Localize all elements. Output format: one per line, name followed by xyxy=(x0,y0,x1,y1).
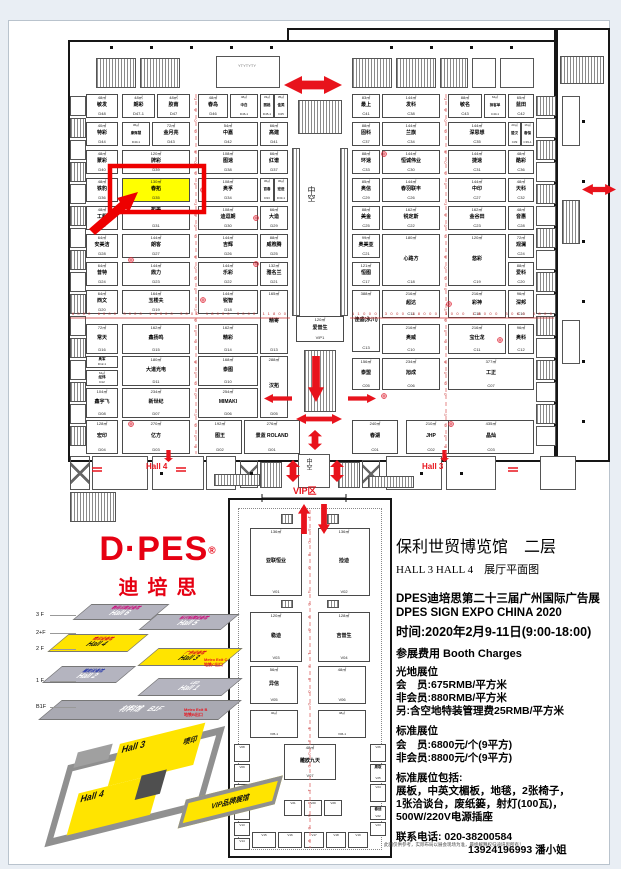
wall-booth xyxy=(536,206,556,226)
std-nonmember-price: 非会员:8800元/个(9平方) xyxy=(396,752,616,765)
booth-V01: 136㎡亚联恒业V01 xyxy=(250,528,302,596)
floor-tag: 3 F xyxy=(36,612,44,618)
std-includes-1: 展板，中英文楣板，地毯，2张椅子， xyxy=(396,785,616,798)
mini-map-vip-label: VIP品牌展馆 xyxy=(210,793,250,810)
facility-room xyxy=(500,58,534,88)
escalator-icon xyxy=(338,462,360,488)
facility-room xyxy=(562,320,580,364)
booth-D46: 48㎡春岛D46 xyxy=(198,94,228,118)
booth-C26: 144㎡春羽联丰C26 xyxy=(382,178,440,202)
wall-booth xyxy=(70,360,86,380)
booth-D45-1: 33㎡丽格D45-1 xyxy=(260,94,274,118)
wall-booth xyxy=(70,206,86,226)
booth-C34: 144㎡兰旗C34 xyxy=(382,122,440,146)
escalator-icon xyxy=(396,58,436,88)
logo-text: D·PES xyxy=(99,530,208,568)
facility-room xyxy=(562,96,580,146)
wall-booth xyxy=(70,294,86,314)
booth-C17: 121㎡恒图C17 xyxy=(352,262,380,286)
booth-C03: 435㎡晶灿C03 xyxy=(448,420,534,454)
booth-C32: 48㎡天科C32 xyxy=(508,178,534,202)
wall-booth xyxy=(70,426,86,446)
escalator-icon xyxy=(352,58,392,88)
booth-C19: 120㎡悠彩C19 xyxy=(448,234,506,286)
wall-booth xyxy=(536,338,556,358)
booth-C22: 162㎡锐定斯C22 xyxy=(382,206,440,230)
escalator-icon xyxy=(96,58,136,88)
booth-V04: 128㎡吉普生V04 xyxy=(318,612,370,662)
booth-C28: 48㎡音惠C28 xyxy=(508,206,534,230)
booth-VIP1: 120㎡爱普生VIP1 xyxy=(296,316,344,342)
raw-member-price: 会 员:675RMB/平方米 xyxy=(396,679,616,692)
booth-D19: 164㎡玉楼夫D19 xyxy=(122,290,190,314)
booth-V06: 48㎡V06 xyxy=(318,666,366,704)
wall-booth xyxy=(70,404,86,424)
wall-booth xyxy=(536,250,556,270)
booth-D48: 48㎡敏发D48 xyxy=(86,94,118,118)
escalator-icon xyxy=(440,58,468,88)
booth-C15: 216㎡彩神C15 xyxy=(448,290,506,318)
booth-V25: 周取V25 xyxy=(370,764,386,782)
booth-C07: 377㎡工正C07 xyxy=(448,358,534,390)
vip-area-label: VIP区 xyxy=(293,487,317,496)
booth-D27: 144㎡朗客D27 xyxy=(122,234,190,258)
floor-leader-line xyxy=(50,649,76,650)
booth-V26: V26 xyxy=(370,744,386,762)
booth-V18: V18 xyxy=(326,832,346,848)
booth-V21: V21 xyxy=(284,800,302,816)
booth-D02: 192㎡图王D02 xyxy=(198,420,242,454)
escalator-icon xyxy=(260,462,282,488)
booth-C27: 144㎡中印C27 xyxy=(448,178,506,202)
wall-booth xyxy=(536,404,556,424)
booth-D39: 120㎡牌彩D39 xyxy=(122,150,190,174)
column-dot xyxy=(582,180,585,183)
wall-booth xyxy=(70,118,86,138)
floorplan-page: 48㎡敏发D4840㎡特彩D4448㎡蒙彩D4048㎡铁豹D3648㎡工程D32… xyxy=(0,0,621,869)
booth-C12: 96㎡奥科C12 xyxy=(508,324,534,354)
booth-D34: 108㎡奥孚D34 xyxy=(198,178,258,202)
booth-C29: 85㎡奥信C29 xyxy=(352,178,380,202)
escalator-icon xyxy=(327,514,339,524)
wall-booth xyxy=(536,228,556,248)
stairs-icon xyxy=(70,456,90,490)
column-dot xyxy=(190,46,193,49)
floor-tag: 2+F xyxy=(36,630,46,636)
escalator-icon xyxy=(562,200,580,244)
floor-leader-line xyxy=(50,681,76,682)
column-dot xyxy=(510,46,513,49)
column-dot xyxy=(582,420,585,423)
escalator-icon xyxy=(292,148,300,316)
booth-D18: 144㎡锐智D18 xyxy=(198,290,258,314)
booth-D07: 234㎡新世纪D07 xyxy=(122,388,190,418)
escalator-icon xyxy=(281,514,293,524)
registered-mark-icon: ® xyxy=(208,546,215,557)
booth-V24: V24 xyxy=(370,784,386,802)
booth-D28: 64㎡安美洁D28 xyxy=(86,234,118,258)
column-dot xyxy=(430,46,433,49)
expo-title-en: DPES SIGN EXPO CHINA 2020 xyxy=(396,606,616,620)
booth-D14: 162㎡精彩D14 xyxy=(198,324,258,354)
facility-room xyxy=(446,456,496,490)
column-dot xyxy=(582,120,585,123)
hall4-label: Hall 4 xyxy=(146,463,167,471)
booth-C36: 48㎡酷彩C36 xyxy=(508,150,534,174)
booth-C23: 162㎡金谷田C23 xyxy=(448,206,506,230)
booth-C38: 144㎡发科C38 xyxy=(382,94,440,118)
booth-D08: 104㎡鑫宇飞D08 xyxy=(86,388,118,418)
wall-booth xyxy=(536,272,556,292)
booth-D42: 54㎡中嘉D42 xyxy=(198,122,258,146)
column-dot xyxy=(470,46,473,49)
std-includes-2: 1张洽谈台，废纸篓，射灯(100瓦)， xyxy=(396,798,616,811)
booth-D37: 66㎡红谱D37 xyxy=(260,150,288,174)
booth-D24: 64㎡普特D24 xyxy=(86,262,118,286)
booth-D29: 66㎡大造D29 xyxy=(260,206,288,230)
booth-C33: 88㎡环速C33 xyxy=(352,150,380,174)
booth-V05-1: 40㎡V05-1 xyxy=(250,710,298,738)
booth-charges-title: 参展费用 Booth Charges xyxy=(396,648,616,662)
expo-time: 时间:2020年2月9-11日(9:00-18:00) xyxy=(396,625,616,641)
venue-mini-map: Hall 3 喷印 Hall 4 喷印 VIP品牌展馆 xyxy=(28,738,248,863)
booth-D32: 48㎡工程D32 xyxy=(86,206,118,230)
wall-booth xyxy=(536,294,556,314)
wall-booth xyxy=(70,162,86,182)
booth-D47-1: 48㎡朗彩D47-1 xyxy=(122,94,155,118)
facility-room xyxy=(216,56,280,88)
booth-D01: 276㎡景蓝 ROLANDD01 xyxy=(244,420,300,454)
booth-C30: 144㎡恒诚伟业C30 xyxy=(382,150,440,174)
booth-V19: V19 xyxy=(348,832,368,848)
booth-D30: 108㎡迪逗朗D30 xyxy=(198,206,258,230)
floor-tag: 2 F xyxy=(36,646,44,652)
wall-booth xyxy=(70,382,86,402)
booth-D25: 88㎡威煦腾D25 xyxy=(260,234,288,258)
raw-mgmt-fee: 另:含空地特装管理费25RMB/平方米 xyxy=(396,705,616,718)
facility-room xyxy=(92,456,148,490)
column-dot xyxy=(582,300,585,303)
booth-D12: 64㎡经纬D12 xyxy=(86,370,118,386)
wall-booth xyxy=(70,250,86,270)
booth-C20: 88㎡爱科C20 xyxy=(508,262,534,286)
logo-cn-text: 迪培思 xyxy=(70,571,245,600)
column-dot xyxy=(250,472,253,475)
wall-booth xyxy=(536,316,556,336)
stack-slab-Hall-1: LEDHall 1 xyxy=(137,678,242,696)
booth-D46-1: 48㎡中白D46-1 xyxy=(230,94,258,118)
escalator-icon xyxy=(368,476,414,488)
escalator-icon xyxy=(560,56,604,84)
column-dot xyxy=(160,472,163,475)
std-member-price: 会 员:6800元/个(9平方) xyxy=(396,739,616,752)
wall-booth xyxy=(536,360,556,380)
booth-C42: 65㎡蓝田C42 xyxy=(508,94,534,118)
booth-C37: 88㎡固科C37 xyxy=(352,122,380,146)
escalator-icon xyxy=(281,600,293,608)
booth-V20: V20 xyxy=(304,800,322,816)
booth-D13: 165㎡精寄D13 xyxy=(260,290,288,354)
column-dot xyxy=(230,46,233,49)
booth-C39-1: 16㎡春恒C39-1 xyxy=(521,122,534,146)
vent-marks: YTYTYTY xyxy=(238,64,256,68)
floor-leader-line xyxy=(50,633,76,634)
booth-D44: 40㎡特彩D44 xyxy=(86,122,118,146)
booth-D16: 72㎡常天D16 xyxy=(86,324,118,354)
wall-booth xyxy=(536,184,556,204)
facility-room xyxy=(540,456,576,490)
wall-booth xyxy=(536,382,556,402)
booth-C05: 156㎡泰盟C05 xyxy=(352,358,380,390)
booth-D03: 270㎡亿方D03 xyxy=(122,420,190,454)
dpes-logo: D·PES® 迪培思 xyxy=(70,530,245,600)
column-dot xyxy=(110,46,113,49)
floor-leader-line xyxy=(50,615,76,616)
column-dot xyxy=(150,46,153,49)
booth-C35: 144㎡深思想C35 xyxy=(448,122,506,146)
stack-slab-Hall-5: 标识标牌设备馆Hall 5 xyxy=(138,614,239,630)
booth-D47: 48㎡胶南D47 xyxy=(157,94,190,118)
booth-D20: 64㎡西文D20 xyxy=(86,290,118,314)
facility-room xyxy=(298,454,330,488)
booth-D22: 144㎡乐彩D22 xyxy=(198,262,258,286)
wall-booth xyxy=(70,272,86,292)
booth-C13: 388㎡佳盛(永川)C13 xyxy=(352,290,380,352)
booth-V05: 56㎡异信V05 xyxy=(250,666,298,704)
booth-C14: 216㎡超达C14 xyxy=(382,290,440,318)
booth-C06: 234㎡旭成C06 xyxy=(382,358,440,390)
std-includes-title: 标准展位包括: xyxy=(396,772,616,785)
booth-D31: 拓美D31 xyxy=(122,206,190,230)
booth-D36: 48㎡铁豹D36 xyxy=(86,178,118,202)
metro-exit-label: Metro Exit C地铁C出口 xyxy=(204,658,227,668)
booth-D33-1: 30㎡宏进D33-1 xyxy=(274,178,288,202)
booth-V03: 120㎡稳迪V03 xyxy=(250,612,302,662)
booth-D10: 168㎡泰图D10 xyxy=(198,356,258,386)
booth-D05: 288㎡汉拓D05 xyxy=(260,356,288,418)
expo-info-panel: 保利世贸博览馆 二层 HALL 3 HALL 4 展厅平面图 DPES迪培思第二… xyxy=(396,538,616,858)
column-dot xyxy=(420,472,423,475)
booth-C11: 216㎡宝仕龙C11 xyxy=(448,324,506,354)
booth-C01: 240㎡春湖C01 xyxy=(352,420,398,454)
booth-C43: 88㎡敏名C43 xyxy=(448,94,482,118)
disclaimer-note: 此图仅供参考，实际布局以展会现场为准，最终解释权归迪培思所有！ xyxy=(384,842,616,848)
column-dot xyxy=(582,240,585,243)
booth-C25: 88㎡美金C25 xyxy=(352,206,380,230)
booth-C24: 72㎡观澜C24 xyxy=(508,234,534,258)
booth-D12-1: 奥军D12-1 xyxy=(86,356,118,368)
booth-C40-1: 64㎡择客单C40-1 xyxy=(484,94,506,118)
booth-D33: 36㎡百春D33 xyxy=(260,178,274,202)
hall-wall xyxy=(287,28,556,42)
escalator-icon xyxy=(298,100,342,134)
booth-V02: 136㎡捡迪V02 xyxy=(318,528,370,596)
plan-subtitle: HALL 3 HALL 4 展厅平面图 xyxy=(396,564,616,578)
escalator-icon xyxy=(70,492,116,522)
booth-D11: 180㎡大道光电D11 xyxy=(122,356,190,386)
wall-booth xyxy=(70,316,86,336)
booth-D41: 66㎡高建D41 xyxy=(260,122,288,146)
booth-C41: 83㎡最上C41 xyxy=(352,94,380,118)
floor-tag: 1 F xyxy=(36,678,44,684)
booth-V15: V15 xyxy=(252,832,276,848)
booth-C21: 99㎡奥美亚C21 xyxy=(352,234,380,258)
wall-booth xyxy=(70,228,86,248)
wall-booth xyxy=(536,162,556,182)
booth-V17: V17 xyxy=(304,832,324,848)
booth-C18: 180㎡心路方C18 xyxy=(382,234,440,286)
booth-D35: 130㎡春拓D35 xyxy=(122,178,190,202)
wall-booth xyxy=(536,118,556,138)
facility-room xyxy=(472,58,496,88)
wall-booth xyxy=(536,96,556,116)
floor-tag: B1F xyxy=(36,704,46,710)
booth-C16: 96㎡深邦C16 xyxy=(508,290,534,318)
column-dot xyxy=(582,360,585,363)
wall-booth xyxy=(70,96,86,116)
booth-D23: 144㎡鼎力D23 xyxy=(122,262,190,286)
escalator-icon xyxy=(214,474,260,486)
std-includes-3: 500W/220V电源插座 xyxy=(396,811,616,824)
booth-V06-1: 48㎡V06-1 xyxy=(318,710,366,738)
booth-C10: 216㎡奥威C10 xyxy=(382,324,440,354)
escalator-icon xyxy=(304,350,336,412)
booth-C31: 144㎡捷速C31 xyxy=(448,150,506,174)
booth-V29: V29 xyxy=(324,800,342,816)
booth-V23: V23 xyxy=(370,822,386,836)
hall-wall xyxy=(556,28,610,462)
column-dot xyxy=(390,46,393,49)
hall3-label: Hall 3 xyxy=(422,463,443,471)
booth-V16: V16 xyxy=(278,832,302,848)
std-booth-title: 标准展位 xyxy=(396,725,616,738)
wall-booth xyxy=(70,184,86,204)
booth-V07: 48㎡雕欧九天V07 xyxy=(284,744,336,780)
booth-D43: 72㎡金月亮D43 xyxy=(152,122,190,146)
raw-nonmember-price: 非会员:880RMB/平方米 xyxy=(396,692,616,705)
booth-D26: 144㎡吉辉D26 xyxy=(198,234,258,258)
booth-D45: 35㎡佳美D45 xyxy=(274,94,288,118)
booth-D06: 254㎡MIMAKID06 xyxy=(198,388,258,418)
booth-D38: 108㎡图速D38 xyxy=(198,150,258,174)
wall-booth xyxy=(536,426,556,446)
atrium-label-2: 中空 xyxy=(305,458,311,470)
expo-title-cn: DPES迪培思第二十三届广州国际广告展 xyxy=(396,592,616,606)
booth-D04: 128㎡宏印D04 xyxy=(86,420,118,454)
booth-D40: 48㎡蒙彩D40 xyxy=(86,150,118,174)
booth-C39: 20㎡楚汉C39 xyxy=(508,122,521,146)
column-dot xyxy=(460,472,463,475)
floor-leader-line xyxy=(50,707,76,708)
escalator-icon xyxy=(327,600,339,608)
wall-booth xyxy=(70,140,86,160)
raw-space-title: 光地展位 xyxy=(396,666,616,679)
wall-booth xyxy=(70,338,86,358)
venue-title: 保利世贸博览馆 二层 xyxy=(396,538,616,558)
booth-D15: 162㎡鑫扬鸣D15 xyxy=(122,324,190,354)
booth-D40-1: 36㎡康辉慧D40-1 xyxy=(122,122,150,146)
escalator-icon xyxy=(140,58,180,88)
column-dot xyxy=(270,46,273,49)
escalator-icon xyxy=(340,148,348,316)
booth-D21: 132㎡雅名兰D21 xyxy=(260,262,288,286)
atrium-label: 中空 xyxy=(307,186,315,202)
booth-V22: 春迪V22 xyxy=(370,806,386,820)
wall-booth xyxy=(536,140,556,160)
